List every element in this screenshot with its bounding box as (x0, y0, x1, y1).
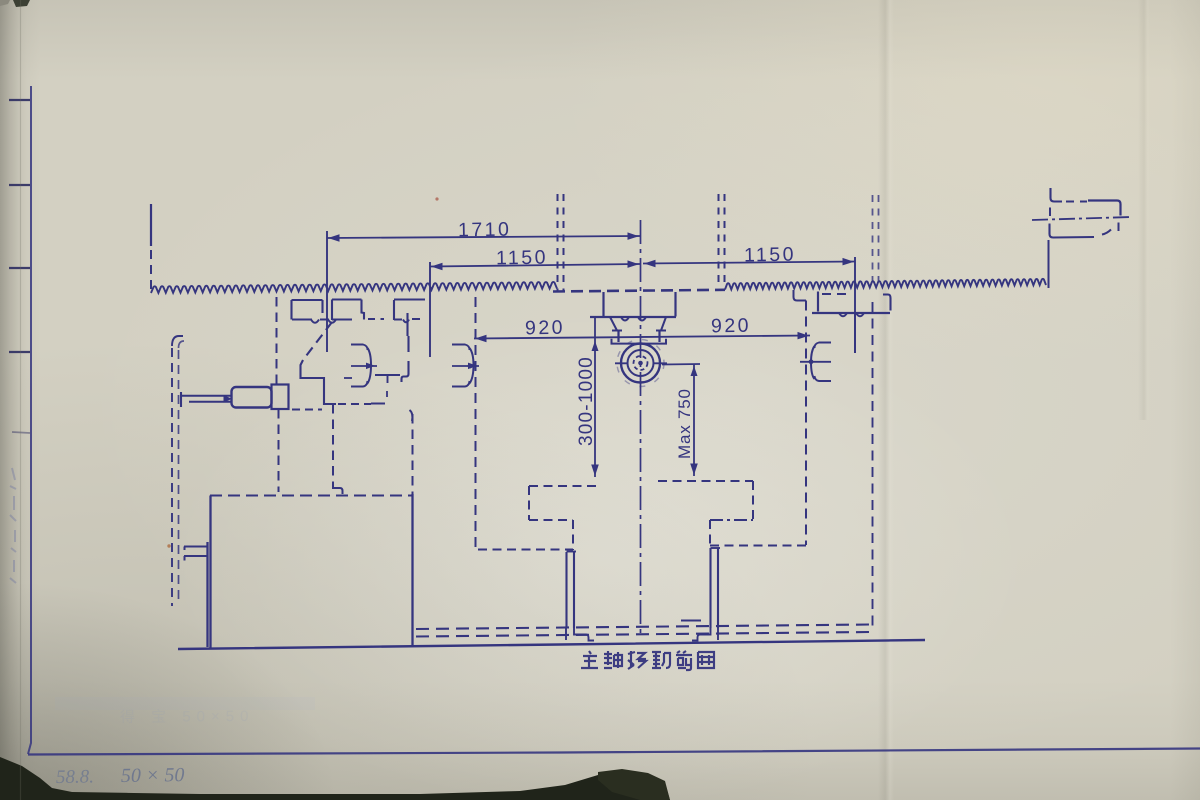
svg-text:1150: 1150 (744, 244, 796, 267)
svg-text:1710: 1710 (458, 218, 512, 241)
svg-text:920: 920 (711, 315, 751, 338)
svg-text:Max 750: Max 750 (675, 388, 694, 459)
svg-text:1150: 1150 (496, 247, 548, 270)
svg-text:58.8.: 58.8. (56, 766, 94, 788)
svg-text:920: 920 (525, 317, 565, 340)
svg-text:得 宝 50×50: 得 宝 50×50 (120, 708, 255, 726)
svg-text:50 × 50: 50 × 50 (121, 764, 185, 787)
svg-text:300-1000: 300-1000 (576, 356, 597, 446)
